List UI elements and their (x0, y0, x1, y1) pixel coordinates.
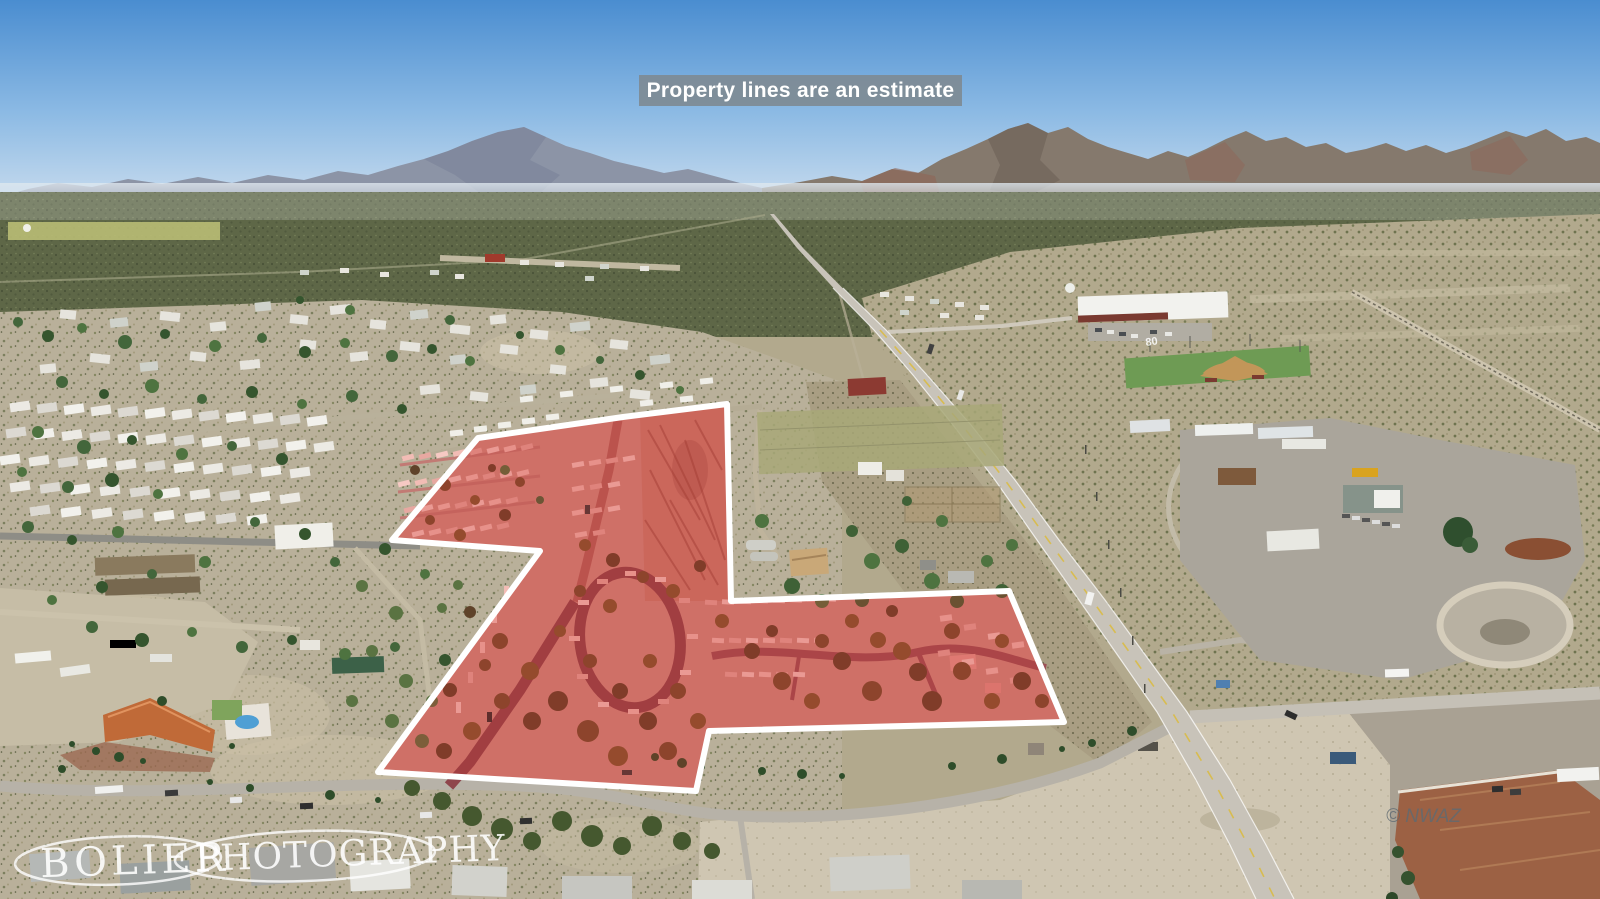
house (190, 351, 207, 362)
distant-building (955, 302, 964, 307)
tree (936, 515, 948, 527)
parked-car (1382, 522, 1390, 526)
tree (127, 435, 137, 445)
house (470, 391, 489, 402)
tree (895, 539, 909, 553)
farm-house (789, 548, 829, 577)
tree (1006, 539, 1018, 551)
red-roof-building (848, 377, 887, 396)
house (350, 351, 369, 362)
tree (197, 394, 207, 404)
tree (257, 333, 267, 343)
tree (227, 441, 237, 451)
parked-rv (150, 654, 172, 662)
house (450, 354, 467, 365)
parked-car (1150, 330, 1157, 334)
tree (209, 340, 221, 352)
palm-tree (1088, 739, 1096, 747)
palm-tree (997, 754, 1007, 764)
tree (77, 440, 91, 454)
tree (552, 811, 572, 831)
tree (613, 837, 631, 855)
tree (160, 329, 170, 339)
blue-container (1330, 752, 1356, 764)
shed (920, 560, 936, 570)
silo (1065, 283, 1075, 293)
house (610, 339, 629, 350)
vehicle (1385, 669, 1409, 678)
palm-tree (207, 779, 213, 785)
tree (135, 633, 149, 647)
distant-building (555, 262, 564, 267)
vehicle (165, 790, 178, 797)
palm-tree (246, 784, 254, 792)
distant-building (905, 296, 914, 301)
brown-building (1218, 468, 1256, 485)
parked-car (1352, 516, 1360, 520)
distant-building (940, 313, 949, 318)
tree (676, 386, 684, 394)
vehicle (1510, 789, 1521, 795)
credit-text: © NWAZ (1386, 806, 1462, 827)
tree (86, 621, 98, 633)
house (562, 876, 632, 899)
tree (386, 350, 398, 362)
tree (864, 553, 880, 569)
hoop-shed (746, 540, 776, 550)
tree (437, 603, 447, 613)
tree (784, 578, 800, 594)
palm-tree (58, 765, 66, 773)
distant-building (900, 310, 909, 315)
tree (846, 525, 858, 537)
swimming-pool (235, 715, 259, 729)
tree (1462, 537, 1478, 553)
house (210, 321, 227, 332)
tree (902, 496, 912, 506)
distant-building (975, 315, 984, 320)
tree (96, 581, 108, 593)
lawn (212, 700, 242, 720)
tree (399, 674, 413, 688)
palm-tree (157, 696, 167, 706)
vehicle (1492, 786, 1503, 792)
parked-car (1392, 524, 1400, 528)
tree (236, 641, 248, 653)
storage-rows (105, 576, 201, 595)
house (590, 377, 609, 388)
house (290, 314, 309, 325)
parked-car (1342, 514, 1350, 518)
palm-tree (1127, 726, 1137, 736)
distant-building (880, 292, 889, 297)
house (255, 301, 272, 312)
palm-tree (114, 752, 124, 762)
tree (17, 467, 27, 477)
tree (62, 481, 74, 493)
tree (153, 489, 163, 499)
distant-building (455, 274, 464, 279)
distant-building (980, 305, 989, 310)
canopy (1267, 529, 1320, 552)
yellow-equipment (1352, 468, 1378, 477)
tree (427, 344, 437, 354)
tree (924, 573, 940, 589)
house (110, 317, 129, 328)
distant-building (930, 299, 939, 304)
tree (596, 356, 604, 364)
house (692, 880, 752, 899)
tree (420, 569, 430, 579)
palm-tree (325, 790, 335, 800)
tree (433, 792, 451, 810)
tree-tinted (464, 606, 476, 618)
distant-building (430, 270, 439, 275)
tree (187, 627, 197, 637)
parked-car (1119, 332, 1126, 336)
tree (340, 338, 350, 348)
vehicle (520, 818, 532, 824)
tree (299, 528, 311, 540)
distant-building (585, 276, 594, 281)
tree (299, 346, 311, 358)
tree (465, 356, 475, 366)
palm-tree (1059, 746, 1065, 752)
tree-tinted (410, 465, 420, 475)
trailer-building (1282, 439, 1326, 449)
tree (673, 832, 691, 850)
tree (105, 473, 119, 487)
tree (453, 580, 463, 590)
house (829, 855, 910, 892)
tree (276, 453, 288, 465)
distant-building (380, 272, 389, 277)
palm-tree (229, 743, 235, 749)
tree (13, 317, 23, 327)
tree (67, 535, 77, 545)
tree (112, 526, 124, 538)
distant-building (600, 264, 609, 269)
palm-tree (839, 773, 845, 779)
tree (581, 825, 603, 847)
tree (99, 389, 109, 399)
tree (555, 345, 565, 355)
tree (346, 390, 358, 402)
tree (390, 642, 400, 652)
house (520, 384, 537, 395)
tree (635, 370, 645, 380)
house (962, 880, 1022, 899)
palm-tree (758, 767, 766, 775)
banner-text: Property lines are an estimate (647, 79, 955, 103)
tree (339, 648, 351, 660)
tree (462, 806, 482, 826)
palm-tree (92, 747, 100, 755)
tree (297, 399, 307, 409)
house (40, 363, 57, 374)
tree (397, 404, 407, 414)
house (60, 309, 77, 320)
tree (389, 606, 403, 620)
tree (77, 323, 87, 333)
vehicle (300, 803, 313, 809)
playground-equipment (1216, 680, 1230, 688)
tree (404, 780, 420, 796)
aerial-photo-scene: 80 (0, 0, 1600, 899)
house (140, 361, 159, 372)
parked-rv (110, 640, 136, 648)
tree (379, 543, 391, 555)
parked-car (1131, 334, 1138, 338)
tree (346, 695, 358, 707)
tree (642, 816, 662, 836)
distant-building (520, 260, 529, 265)
tree (32, 426, 44, 438)
house (370, 319, 387, 330)
estimate-disclaimer-banner: Property lines are an estimate (639, 75, 962, 106)
palm-tree (140, 758, 146, 764)
parked-car (1107, 330, 1114, 334)
tree (246, 386, 258, 398)
tree (42, 330, 54, 342)
distant-building (300, 270, 309, 275)
tree (366, 645, 378, 657)
parked-car (1095, 328, 1102, 332)
tree (981, 555, 993, 567)
aerial-photo-canvas: 80 (0, 0, 1600, 899)
irrigated-field (8, 222, 220, 240)
tree (330, 557, 340, 567)
tree (516, 331, 524, 339)
tree (345, 305, 355, 315)
tree (199, 556, 211, 568)
hoop-shed (750, 552, 778, 561)
tree (47, 595, 57, 605)
parked-car (1165, 332, 1172, 336)
white-dome-tank (23, 224, 31, 232)
tree (356, 580, 368, 592)
tree (704, 843, 720, 859)
tree (385, 714, 399, 728)
house (530, 329, 549, 340)
palm-tree (375, 797, 381, 803)
red-roof-building (485, 254, 505, 262)
palm-tree (948, 762, 956, 770)
tree (755, 514, 769, 528)
shed (300, 640, 320, 650)
white-shed (858, 462, 882, 475)
shed (1028, 743, 1044, 755)
house (550, 364, 567, 375)
tree (287, 635, 297, 645)
trailer-building (1258, 426, 1313, 439)
house (490, 314, 507, 325)
house (410, 309, 429, 320)
tree (147, 569, 157, 579)
red-dirt-pile (1505, 538, 1571, 560)
tree (439, 654, 451, 666)
tree (250, 517, 260, 527)
hillside-ground-marking: 80 (1145, 335, 1159, 349)
tree (22, 521, 34, 533)
trailer-building (1130, 419, 1171, 433)
vehicle (1557, 767, 1600, 782)
green-roof-building (332, 656, 385, 674)
tree (523, 832, 541, 850)
vehicle (420, 812, 432, 818)
tree (445, 315, 455, 325)
tree (56, 376, 68, 388)
white-shed (886, 470, 904, 481)
parked-car (1362, 518, 1370, 522)
palm-tree (69, 741, 75, 747)
storage-rows (95, 554, 196, 575)
parked-car (1372, 520, 1380, 524)
tree (176, 448, 188, 460)
tree (296, 296, 304, 304)
house (500, 344, 519, 355)
distant-building (340, 268, 349, 273)
palm-tree (797, 769, 807, 779)
tree (145, 379, 159, 393)
tree (118, 335, 132, 349)
shed (948, 571, 974, 583)
trailer-building (1195, 423, 1253, 436)
distant-building (640, 266, 649, 271)
vehicle (230, 797, 242, 804)
